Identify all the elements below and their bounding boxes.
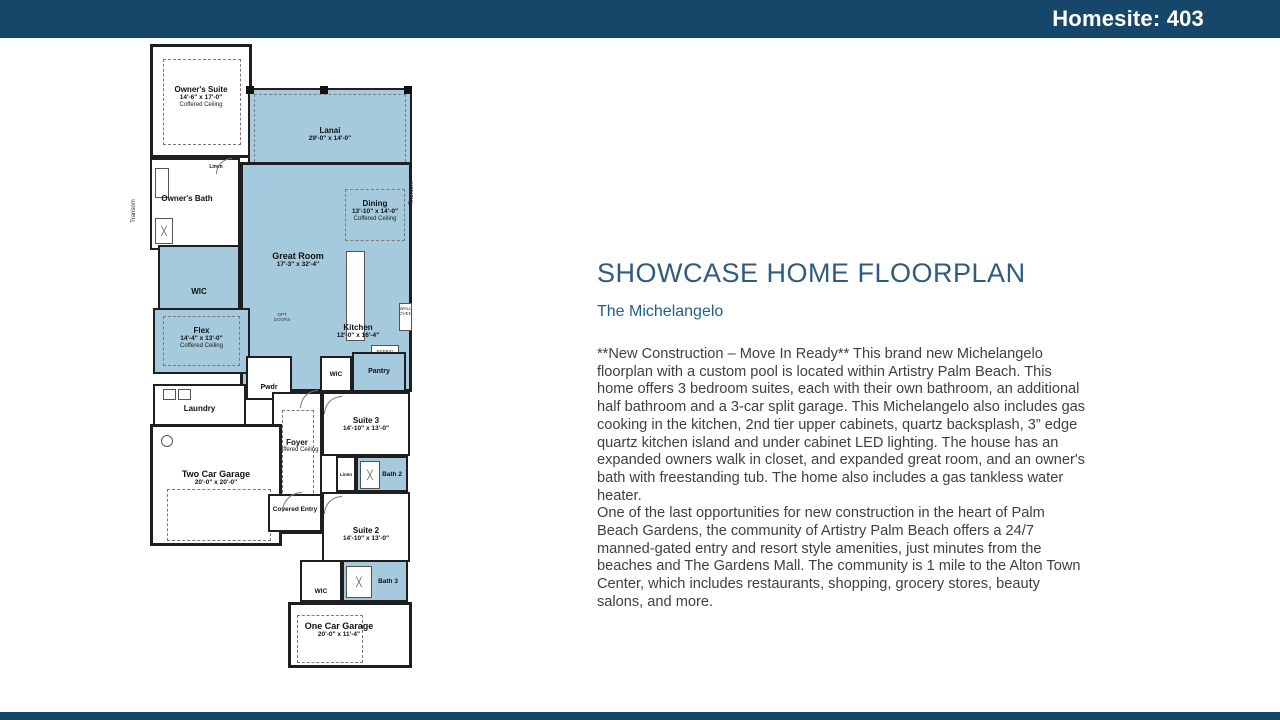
- room-one-car-garage: One Car Garage 20'-0" x 11'-4": [288, 602, 412, 668]
- flyer-page: Homesite: 403 Owner's Suite 14'-6" x 17'…: [0, 0, 1280, 720]
- room-label-great-room: Great Room 17'-3" x 32'-4": [243, 251, 353, 269]
- room-name: Pwdr: [248, 384, 290, 392]
- room-name: Bath 3: [370, 578, 406, 585]
- room-label-suite2: Suite 2 14'-10" x 13'-0": [324, 526, 408, 543]
- dining-coffered-outline: [345, 189, 405, 241]
- room-label-laundry: Laundry: [155, 404, 244, 413]
- room-dims: 20'-0" x 20'-0": [153, 479, 279, 487]
- room-name: WIC: [160, 287, 238, 296]
- room-wic-suite3: WIC: [320, 356, 352, 392]
- room-name: Laundry: [155, 404, 244, 413]
- description-paragraph-2: One of the last opportunities for new co…: [597, 505, 1089, 611]
- room-flex: Flex 14'-4" x 13'-0" Coffered Ceiling: [153, 308, 250, 374]
- room-dims: 14'-10" x 13'-0": [324, 535, 408, 543]
- shower-fixture: ╳: [155, 218, 173, 244]
- water-heater-fixture: [161, 435, 173, 447]
- wall-post: [320, 86, 328, 94]
- room-wic-owners: WIC: [158, 245, 240, 312]
- room-name: WIC: [322, 371, 350, 378]
- shower-fixture: ╳: [346, 566, 372, 598]
- room-wic-suite2: WIC: [300, 560, 342, 602]
- garage-floor-outline: [167, 489, 271, 541]
- footer-bar: [0, 712, 1280, 720]
- room-label-two-car-garage: Two Car Garage 20'-0" x 20'-0": [153, 469, 279, 487]
- description-paragraph-1: **New Construction – Move In Ready** Thi…: [597, 346, 1089, 505]
- room-dims: 14'-10" x 13'-0": [324, 425, 408, 433]
- room-name: Two Car Garage: [153, 469, 279, 479]
- room-name: Suite 2: [324, 526, 408, 535]
- room-label-powder: Pwdr: [248, 384, 290, 392]
- opt-doors-label: OPT DOORS: [271, 313, 293, 323]
- room-label-linen: Linen: [338, 472, 354, 477]
- description-text: **New Construction – Move In Ready** Thi…: [597, 346, 1089, 612]
- room-two-car-garage: Two Car Garage 20'-0" x 20'-0": [150, 424, 282, 546]
- transom-label-left: Transom: [131, 191, 137, 231]
- room-name: Pantry: [354, 368, 404, 376]
- room-pantry: Pantry: [352, 352, 406, 392]
- room-label-wic: WIC: [160, 287, 238, 296]
- wall-post: [246, 86, 254, 94]
- room-label-wic: WIC: [302, 588, 340, 595]
- garage-floor-outline: [297, 615, 363, 663]
- coffered-ceiling-outline: [163, 316, 240, 366]
- room-label-suite3: Suite 3 14'-10" x 13'-0": [324, 416, 408, 433]
- room-linen: Linen: [336, 456, 356, 492]
- header-bar: Homesite: 403: [0, 0, 1280, 38]
- kitchen-island: [346, 251, 365, 341]
- room-label-bath2: Bath 2: [378, 471, 406, 478]
- page-title: SHOWCASE HOME FLOORPLAN: [597, 258, 1026, 289]
- room-dims: 17'-3" x 32'-4": [243, 261, 353, 269]
- room-label-bath3: Bath 3: [370, 578, 406, 585]
- plan-name-subtitle: The Michelangelo: [597, 303, 723, 321]
- room-label-pantry: Pantry: [354, 368, 404, 376]
- room-name: Bath 2: [378, 471, 406, 478]
- transom-label-right: Transom: [409, 173, 415, 213]
- room-name: WIC: [302, 588, 340, 595]
- homesite-label: Homesite: 403: [1052, 6, 1204, 32]
- floorplan-diagram: Owner's Suite 14'-6" x 17'-0" Coffered C…: [120, 40, 472, 672]
- room-owners-suite: Owner's Suite 14'-6" x 17'-0" Coffered C…: [150, 44, 252, 158]
- washer-fixture: [163, 389, 176, 400]
- wall-oven-label: WALL OVEN: [398, 307, 413, 317]
- room-name: Suite 3: [324, 416, 408, 425]
- tub-fixture: [155, 168, 169, 198]
- dryer-fixture: [178, 389, 191, 400]
- coffered-ceiling-outline: [163, 59, 241, 145]
- wall-post: [404, 86, 412, 94]
- room-bath3: ╳ Bath 3: [342, 560, 408, 602]
- room-label-wic: WIC: [322, 371, 350, 378]
- room-laundry: Laundry: [153, 384, 246, 428]
- shower-fixture: ╳: [360, 461, 380, 489]
- room-name: Great Room: [243, 251, 353, 261]
- room-bath2: ╳ Bath 2: [356, 456, 408, 492]
